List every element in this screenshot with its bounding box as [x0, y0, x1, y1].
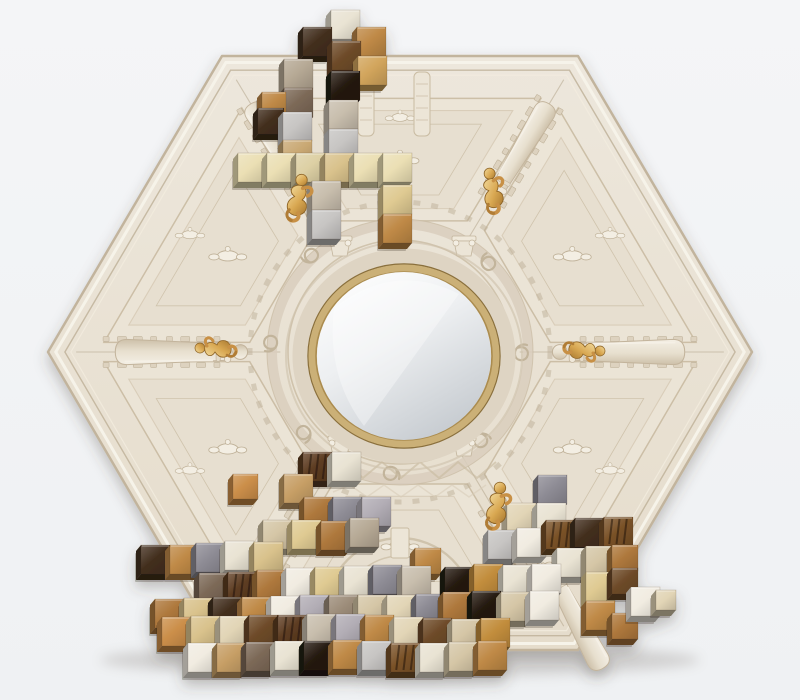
dentil-block — [580, 363, 586, 368]
dentil-block — [103, 337, 109, 342]
photo-of-hexagonal-pixel-mirror-artwork — [0, 0, 800, 700]
artwork-canvas — [0, 0, 800, 700]
dentil-block — [691, 363, 697, 368]
dentil-block — [214, 363, 220, 368]
dentil-block — [181, 363, 190, 368]
dentil-block — [610, 363, 619, 368]
dentil-block — [610, 337, 619, 342]
dentil-block — [594, 363, 603, 368]
wood-cube — [650, 590, 676, 618]
artwork — [48, 10, 752, 680]
wood-cube — [227, 474, 258, 507]
wood-cube — [472, 641, 507, 678]
wood-cube — [377, 214, 412, 251]
dentil-block — [594, 337, 603, 342]
dentil-block — [580, 337, 586, 342]
wood-cube — [306, 210, 341, 247]
dentil-block — [103, 363, 109, 368]
wood-cube — [524, 591, 559, 628]
wood-cube — [326, 452, 361, 489]
dentil-block — [214, 337, 220, 342]
dentil-block — [691, 337, 697, 342]
wood-cube — [377, 153, 412, 190]
pilaster-applique — [414, 72, 430, 136]
dentil-block — [197, 363, 206, 368]
wood-cube — [344, 518, 379, 555]
dentil-block — [181, 337, 190, 342]
keystone — [391, 528, 409, 558]
